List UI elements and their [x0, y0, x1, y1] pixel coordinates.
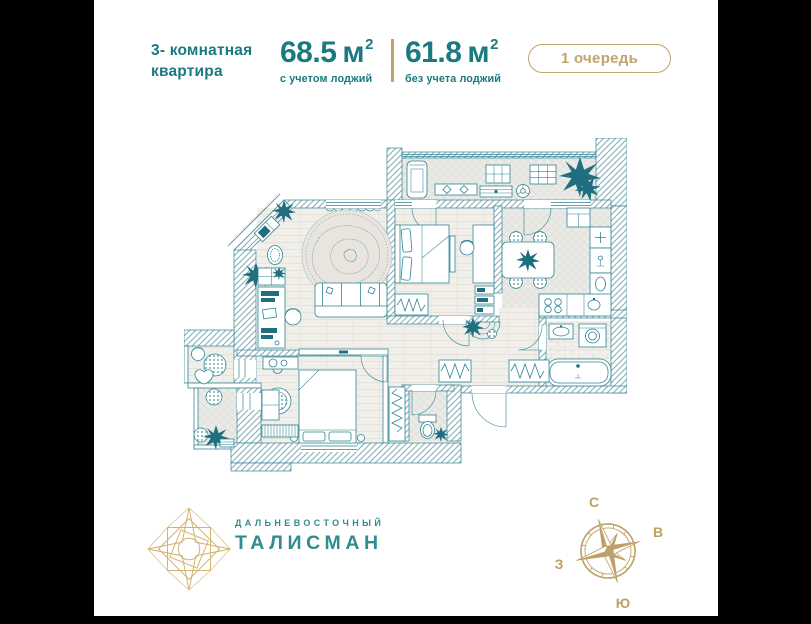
floor-plan	[184, 138, 627, 473]
area-with-loggia-caption: с учетом лоджий	[280, 73, 372, 85]
compass-north-label: С	[589, 494, 599, 510]
apartment-title: 3- комнатная квартира	[151, 40, 252, 82]
floorplan-card: 3- комнатная квартира 68.5м2 с учетом ло…	[94, 0, 718, 616]
developer-logo-star-icon	[144, 503, 234, 595]
phase-badge: 1 очередь	[528, 44, 671, 73]
header-divider	[391, 39, 394, 82]
compass-east-label: В	[653, 524, 663, 540]
area-with-loggia: 68.5м2 с учетом лоджий	[280, 36, 372, 85]
compass-west-label: З	[555, 556, 564, 572]
compass-south-label: Ю	[616, 595, 630, 611]
area-without-loggia-value: 61.8м2	[405, 36, 501, 70]
developer-name: ДАЛЬНЕВОСТОЧНЫЙ ТАЛИСМАН	[235, 518, 384, 555]
area-without-loggia-caption: без учета лоджий	[405, 73, 501, 85]
apartment-title-line1: 3- комнатная	[151, 40, 252, 61]
apartment-title-line2: квартира	[151, 61, 252, 82]
area-without-loggia: 61.8м2 без учета лоджий	[405, 36, 501, 85]
compass-rose-icon: С В Ю З	[546, 487, 671, 612]
viewer-stage: 3- комнатная квартира 68.5м2 с учетом ло…	[0, 0, 811, 624]
area-with-loggia-value: 68.5м2	[280, 36, 372, 70]
developer-name-large: ТАЛИСМАН	[235, 532, 384, 555]
developer-name-small: ДАЛЬНЕВОСТОЧНЫЙ	[235, 518, 384, 528]
